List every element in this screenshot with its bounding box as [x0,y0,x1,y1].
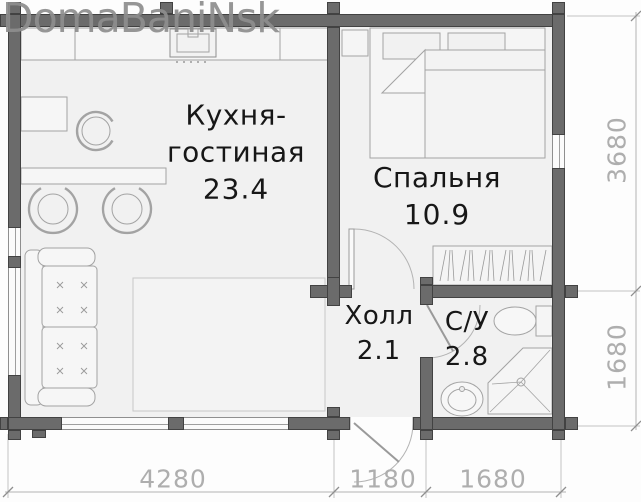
room-name: гостиная [167,134,305,171]
sink [441,382,483,416]
dimension-right-1: 3680 [603,116,632,184]
bedroom-door [349,229,414,289]
wall-bottom [413,417,565,430]
log-end [8,430,21,440]
rug [133,278,325,411]
log-end [327,2,340,14]
floor-plan: Кухня- гостиная 23.4 Спальня 10.9 Холл 2… [0,0,641,502]
bar-stool [29,188,77,233]
window-left [8,228,21,375]
dimension-bottom-1: 4280 [139,465,207,494]
log-end [327,407,340,417]
bar-stool [103,188,151,233]
log-end [327,277,340,306]
window-mullion [168,417,184,430]
log-end [420,430,433,440]
wall-right [552,168,565,430]
room-name: Холл [345,299,414,334]
toilet [494,306,552,336]
watermark: DomaBaniNsk [2,0,279,42]
dimension-right-2: 1680 [603,323,632,391]
log-end [420,277,433,285]
room-name: Спальня [373,159,501,196]
room-label-bathroom: С/У 2.8 [445,305,489,375]
wall-left [8,14,21,228]
wall-interior-bathroom [420,285,433,305]
desk [21,97,67,131]
log-end [565,417,578,430]
wall-interior-bathroom [420,357,433,430]
room-label-kitchen-living: Кухня- гостиная 23.4 [167,97,305,208]
wall-interior-bedroom-south [420,285,552,298]
room-label-bedroom: Спальня 10.9 [373,159,501,233]
log-end [327,430,340,440]
room-name: С/У [445,305,489,340]
log-end [565,285,578,298]
room-area: 23.4 [167,171,305,208]
log-end [32,430,46,438]
wall-interior-bedroom [327,27,340,298]
wardrobe [433,246,552,285]
log-end [552,2,565,14]
log-end [0,417,8,430]
dimension-bottom-3: 1680 [459,465,527,494]
chair [77,112,112,150]
log-end [552,430,565,440]
window-right [552,135,565,168]
bar-counter [21,168,166,184]
room-area: 2.1 [345,334,414,369]
dimension-bottom-2: 1180 [349,465,417,494]
window-mullion [8,256,21,268]
room-name: Кухня- [167,97,305,134]
room-area: 2.8 [445,340,489,375]
shower [488,348,552,414]
wall-bottom [8,417,62,430]
wall-bottom [288,417,350,430]
nightstand [342,30,368,56]
sofa [25,248,97,406]
wall-right [552,14,565,135]
room-area: 10.9 [373,196,501,233]
bed [370,28,545,158]
room-label-hall: Холл 2.1 [345,299,414,369]
